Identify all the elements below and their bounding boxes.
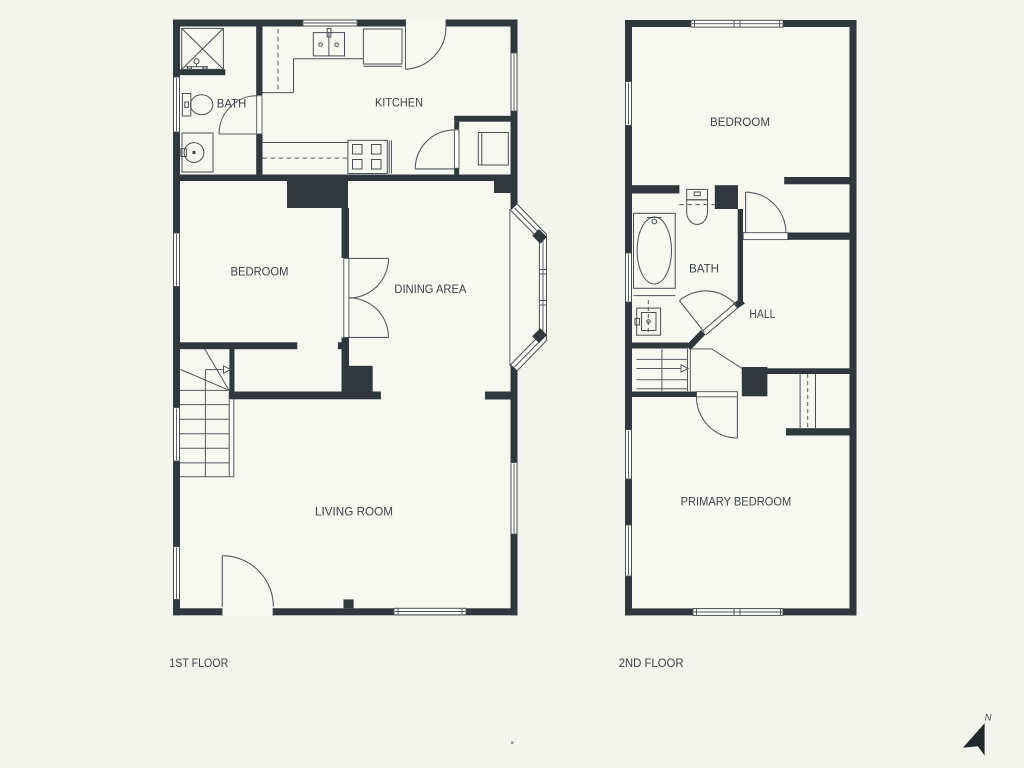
svg-text:LIVING ROOM: LIVING ROOM [315, 505, 393, 519]
svg-text:DINING AREA: DINING AREA [394, 282, 467, 296]
svg-text:KITCHEN: KITCHEN [375, 96, 423, 110]
svg-text:BEDROOM: BEDROOM [231, 265, 289, 279]
svg-text:N: N [985, 713, 992, 724]
svg-text:BATH: BATH [689, 262, 719, 276]
svg-text:2ND FLOOR: 2ND FLOOR [619, 656, 684, 670]
svg-text:BATH: BATH [217, 97, 247, 111]
svg-text:HALL: HALL [749, 307, 775, 321]
svg-text:1ST FLOOR: 1ST FLOOR [169, 656, 228, 670]
svg-text:PRIMARY BEDROOM: PRIMARY BEDROOM [681, 495, 792, 509]
svg-text:BEDROOM: BEDROOM [710, 115, 770, 129]
